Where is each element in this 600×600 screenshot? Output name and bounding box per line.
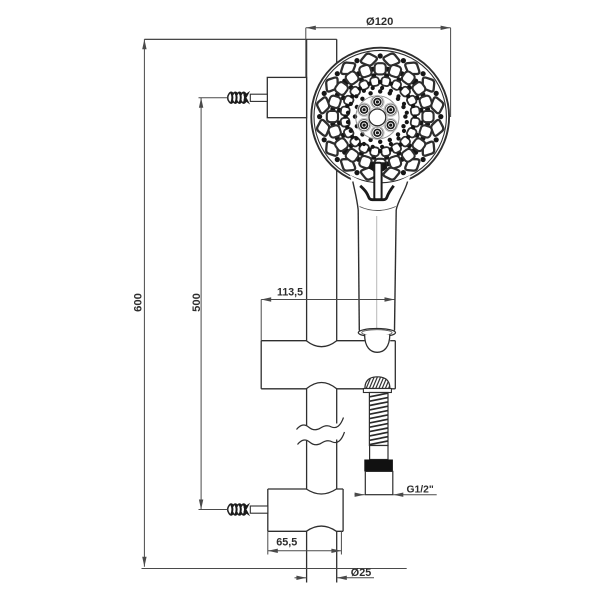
svg-text:65,5: 65,5 (276, 536, 297, 548)
svg-text:Ø25: Ø25 (351, 567, 371, 579)
svg-text:G1/2": G1/2" (407, 485, 434, 496)
svg-text:600: 600 (133, 293, 145, 312)
svg-text:Ø120: Ø120 (366, 16, 393, 28)
svg-text:113,5: 113,5 (277, 286, 303, 298)
svg-text:500: 500 (191, 293, 203, 312)
